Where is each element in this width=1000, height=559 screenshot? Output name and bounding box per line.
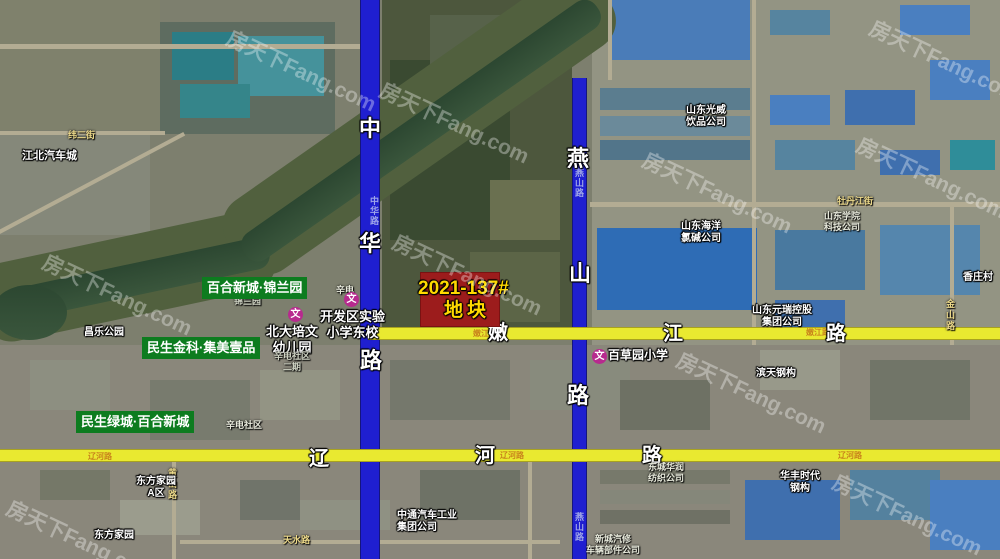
minor-road	[0, 44, 372, 49]
school-icon: 文	[288, 307, 303, 322]
field-patch	[490, 180, 560, 240]
factory-roof	[600, 88, 750, 110]
liaohe-road-small-label: 辽河路	[500, 452, 524, 460]
place-label-huafeng-shidai: 华丰时代 钢构	[780, 471, 820, 495]
place-label-shandong-yuanrui: 山东元瑞控股 集团公司	[752, 305, 812, 329]
building	[260, 370, 340, 420]
place-label-shandong-guangwei: 山东光威 饮品公司	[686, 105, 726, 129]
factory-roof	[900, 5, 970, 35]
place-label-xincheng-qixiu: 新城汽修 车辆部件公司	[586, 534, 640, 556]
factory-roof	[610, 0, 750, 60]
mudanjiang-street-label: 牡丹江街	[837, 197, 873, 206]
nenjiang-road-char: 江	[663, 324, 683, 344]
yanshan-road-char: 山	[569, 263, 591, 285]
minor-road	[590, 202, 1000, 207]
place-label-xiangzhuangcun: 香庄村	[963, 272, 993, 284]
building	[390, 360, 510, 420]
yanshan-road-small-label: 燕山路	[574, 168, 583, 198]
pond	[180, 84, 250, 118]
tianshui-road-label: 天水路	[283, 536, 310, 545]
yanshan-road-char: 路	[567, 385, 589, 407]
school-label-baicaoyuan: 百草园小学	[608, 348, 668, 362]
liaohe-road-char: 河	[475, 446, 495, 466]
building	[40, 470, 110, 500]
factory-roof	[600, 116, 750, 136]
zhonghua-road-char: 华	[359, 233, 381, 255]
parcel-name-label: 地块	[444, 301, 490, 320]
factory-roof	[775, 230, 865, 290]
liaohe-road-small-label: 辽河路	[88, 453, 112, 461]
place-label-shandong-xueyuan: 山东学院 科技公司	[824, 211, 860, 233]
yanshan-road-char: 燕	[567, 148, 589, 170]
building	[620, 380, 710, 430]
zhonghua-road-char: 路	[360, 350, 382, 372]
minor-road	[608, 0, 612, 80]
place-label-changle-park: 昌乐公园	[84, 327, 124, 339]
yanshan-road-small-label: 燕山路	[574, 512, 583, 542]
satellite-map: 中 华 路 燕 山 路 嫩 江 路 辽 河 路 中华路 燕山路 燕山路 嫩江路 …	[0, 0, 1000, 559]
estate-label-minshengjinke-jimeiyipin: 民生金科·集美壹品	[142, 337, 260, 359]
nenjiang-road-char: 路	[826, 324, 846, 344]
factory-roof	[845, 90, 915, 125]
place-label-xindian-shequ-erqi: 辛电社区 二期	[274, 351, 310, 373]
place-label-dongcheng-fangzhi: 东城华润 纺织公司	[648, 462, 684, 484]
school-icon: 文	[344, 292, 359, 307]
school-icon: 文	[592, 349, 607, 364]
jinshan-road-label: 金山路	[945, 299, 954, 332]
factory-roof	[597, 228, 757, 310]
nenjiang-road	[368, 327, 1000, 340]
zhonghua-road	[360, 0, 380, 559]
greenhouse-rows	[600, 490, 730, 504]
pond	[172, 32, 234, 80]
factory-roof	[950, 140, 995, 170]
liaohe-road-small-label: 辽河路	[838, 452, 862, 460]
factory-roof	[770, 95, 830, 125]
greenhouse-rows	[600, 510, 730, 524]
place-label-zhongtong-qiche: 中通汽车工业 集团公司	[397, 510, 457, 534]
minor-road	[752, 0, 756, 345]
factory-roof	[600, 140, 750, 160]
minor-road	[528, 462, 532, 559]
factory-roof	[770, 10, 830, 35]
estate-label-baihexincheng-jinlanyuan: 百合新城·锦兰园	[202, 277, 307, 299]
zhonghua-road-small-label: 中华路	[369, 196, 378, 226]
factory-roof	[775, 140, 855, 170]
building	[30, 360, 110, 410]
building	[870, 360, 970, 420]
liaohe-road-char: 辽	[309, 449, 329, 469]
estate-label-minshenglvcheng-baihexincheng: 民生绿城·百合新城	[76, 411, 194, 433]
place-label-dongfangjiayuan-a: 东方家园 A区	[136, 476, 176, 500]
place-label-bintian-ganggou: 滨天钢构	[756, 368, 796, 380]
zhonghua-road-char: 中	[359, 118, 381, 140]
place-label-xindian-shequ: 辛电社区	[226, 420, 262, 431]
weier-street-label: 纬二街	[68, 131, 95, 140]
school-label-kaifaqu-shiyan: 开发区实验 小学东校	[320, 309, 385, 340]
building	[240, 480, 300, 520]
factory-roof	[880, 225, 980, 295]
place-label-shandong-haiyang: 山东海洋 氯碱公司	[681, 221, 721, 245]
place-label-jiangbei-qichecheng: 江北汽车城	[22, 150, 77, 163]
satellite-patch	[0, 0, 160, 130]
